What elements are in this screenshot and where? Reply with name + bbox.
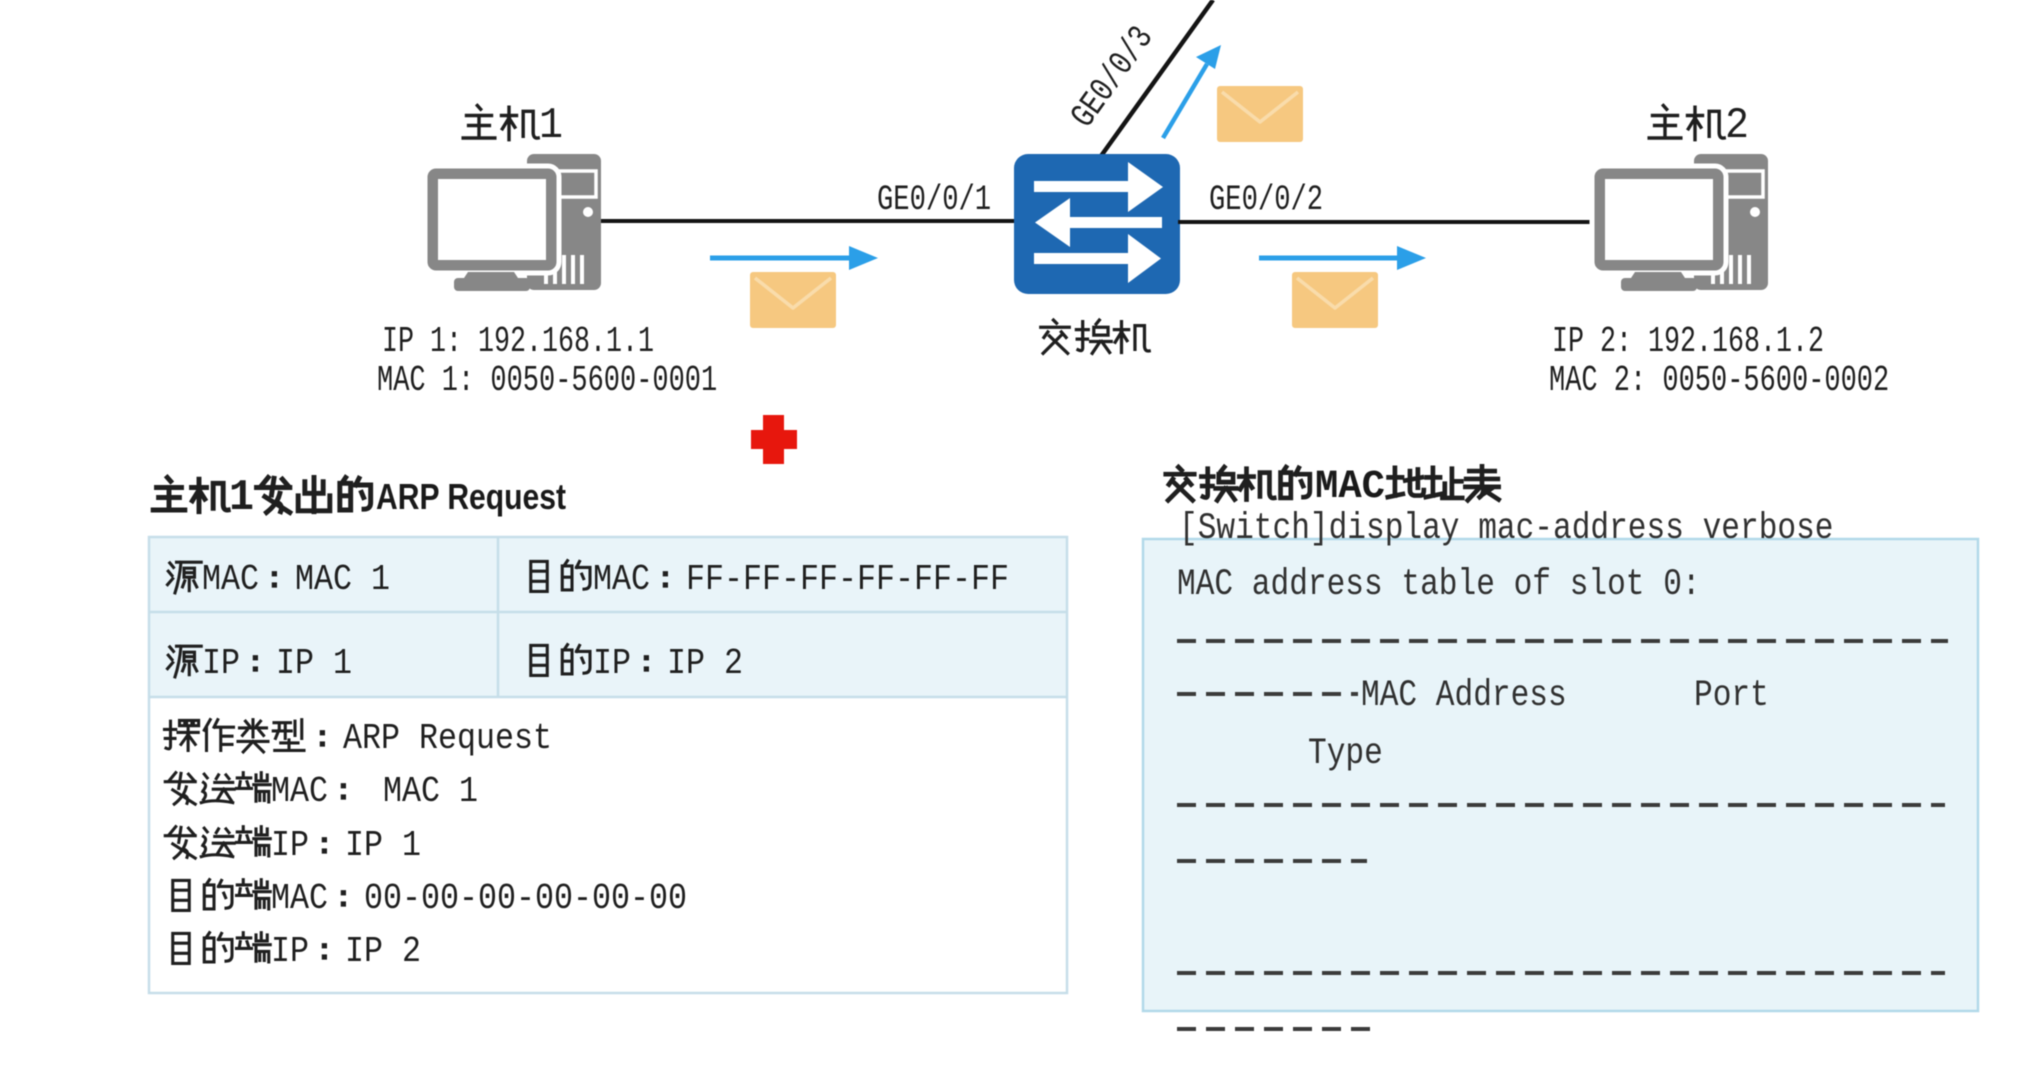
- svg-text:Type: Type: [1308, 733, 1383, 775]
- svg-text:MAC Address: MAC Address: [1361, 675, 1567, 717]
- svg-text:IP: IP: [593, 643, 631, 684]
- svg-text:MAC 1: MAC 1: [295, 559, 390, 600]
- svg-text:MAC: MAC: [271, 878, 328, 919]
- svg-text:IP 1: 192.168.1.1: IP 1: 192.168.1.1: [382, 321, 654, 362]
- svg-text:MAC: MAC: [1315, 465, 1385, 510]
- svg-text:1: 1: [539, 101, 563, 151]
- svg-text:00-00-00-00-00-00: 00-00-00-00-00-00: [364, 878, 687, 919]
- svg-text:Port: Port: [1694, 675, 1769, 717]
- svg-text:ARP Request: ARP Request: [343, 718, 552, 759]
- svg-text:IP 2: 192.168.1.2: IP 2: 192.168.1.2: [1552, 321, 1824, 362]
- svg-text:MAC: MAC: [202, 559, 259, 600]
- svg-text:IP 1: IP 1: [345, 825, 421, 866]
- svg-text:[Switch]display mac-address ve: [Switch]display mac-address verbose: [1179, 508, 1834, 550]
- svg-text:IP: IP: [202, 643, 240, 684]
- svg-text:2: 2: [1725, 101, 1749, 151]
- svg-text:GE0/0/2: GE0/0/2: [1209, 180, 1323, 220]
- svg-text:MAC 1: MAC 1: [364, 771, 478, 812]
- svg-text:GE0/0/1: GE0/0/1: [877, 180, 991, 220]
- svg-text:GE0/0/3: GE0/0/3: [1063, 19, 1162, 135]
- svg-text:ARP Request: ARP Request: [376, 476, 566, 517]
- svg-text:IP 1: IP 1: [276, 643, 352, 684]
- svg-text:1: 1: [229, 473, 254, 523]
- svg-text:MAC: MAC: [593, 559, 650, 600]
- svg-text:IP 2: IP 2: [345, 931, 421, 972]
- svg-text:IP 2: IP 2: [667, 643, 743, 684]
- svg-text:MAC 1: 0050-5600-0001: MAC 1: 0050-5600-0001: [377, 360, 717, 401]
- svg-text:IP: IP: [271, 825, 309, 866]
- svg-text:IP: IP: [271, 931, 309, 972]
- svg-text:MAC 2: 0050-5600-0002: MAC 2: 0050-5600-0002: [1549, 360, 1889, 401]
- svg-text:MAC: MAC: [271, 771, 328, 812]
- svg-text:FF-FF-FF-FF-FF-FF: FF-FF-FF-FF-FF-FF: [686, 559, 1009, 600]
- svg-text:MAC address table of slot 0:: MAC address table of slot 0:: [1177, 564, 1701, 606]
